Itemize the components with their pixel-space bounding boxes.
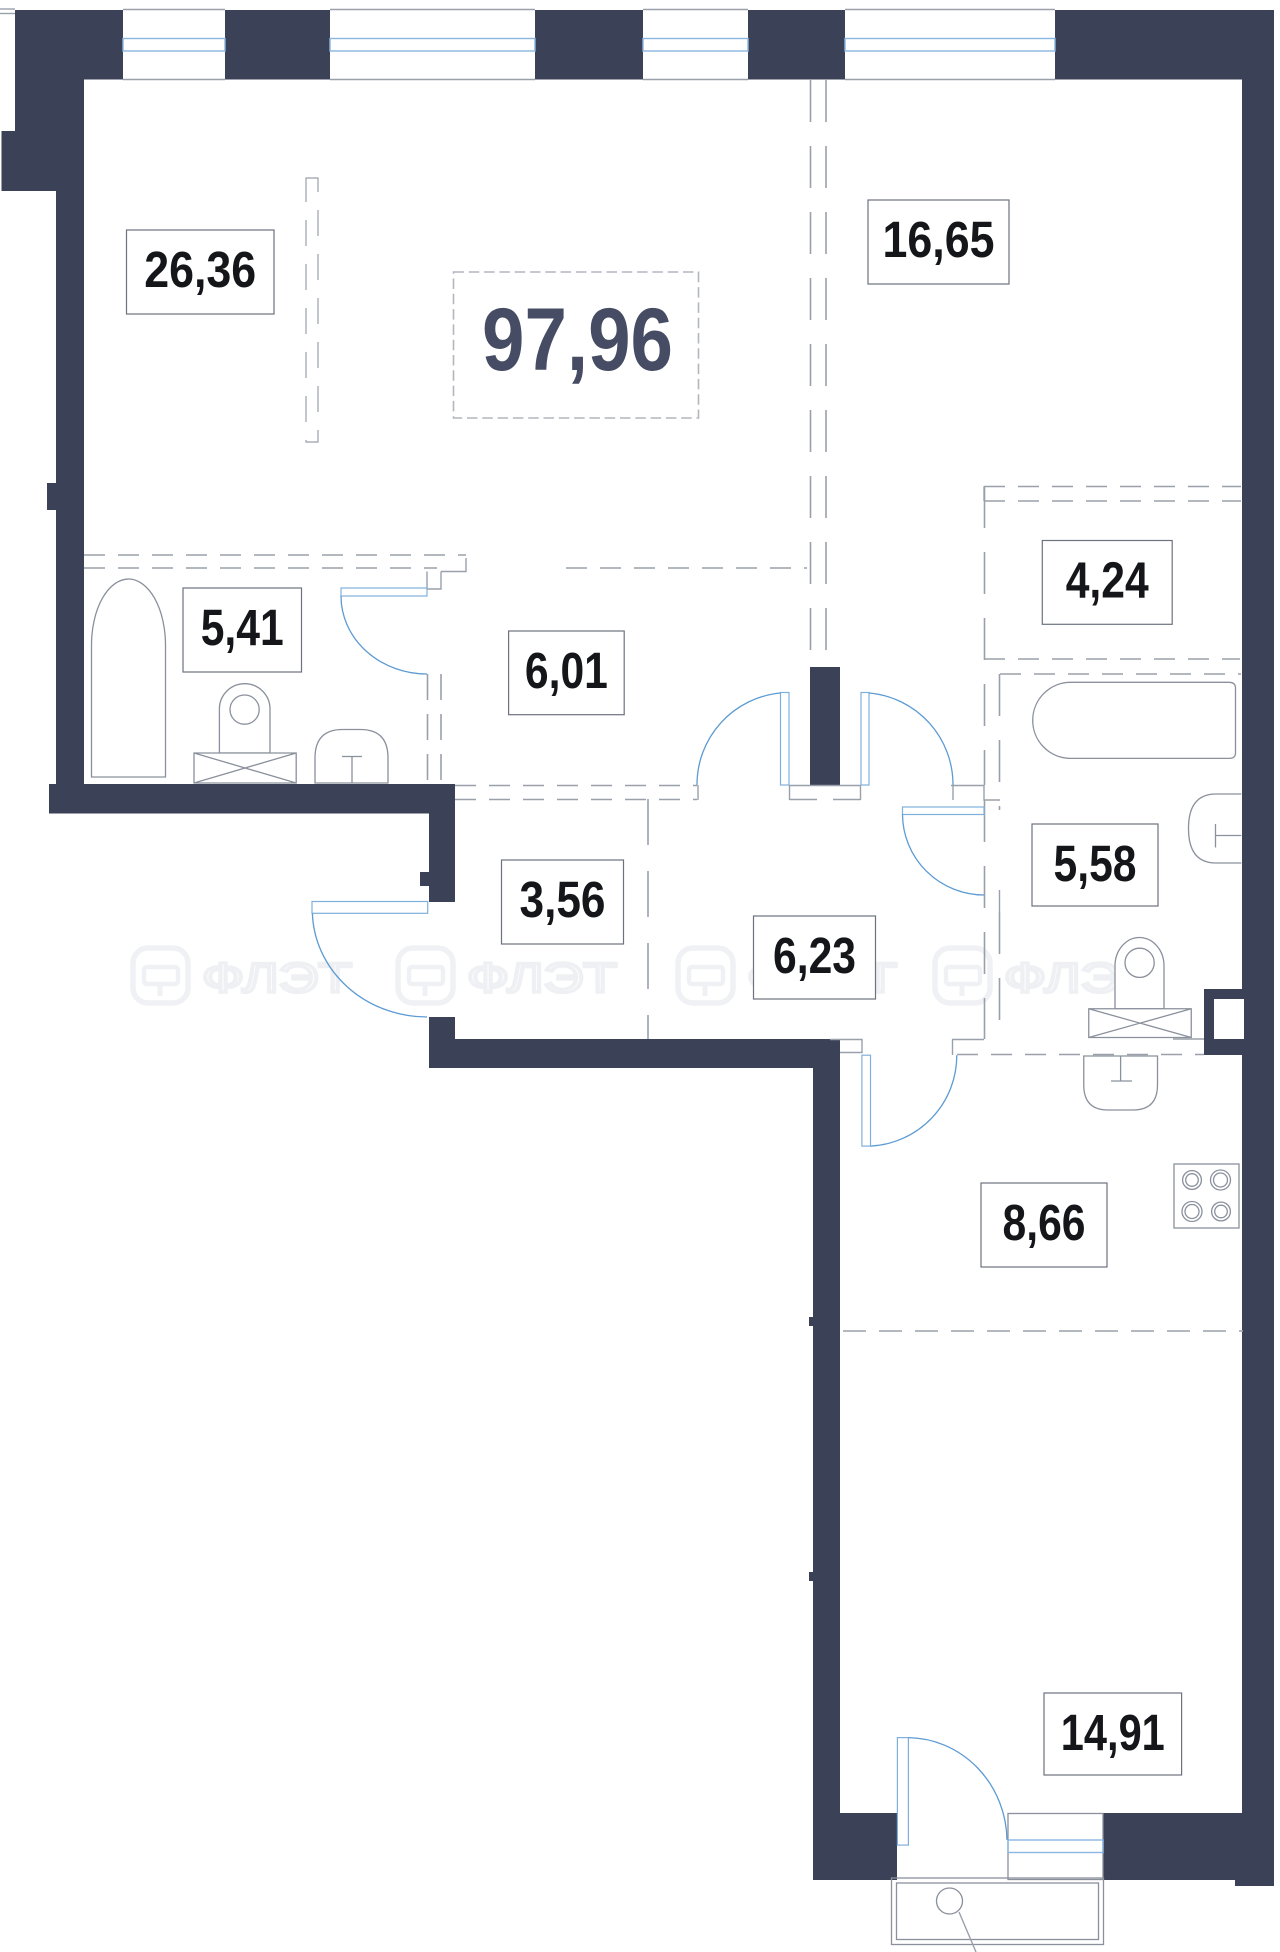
svg-text:ФЛЭТ: ФЛЭТ — [467, 954, 617, 1001]
svg-text:ФЛЭТ: ФЛЭТ — [202, 954, 352, 1001]
svg-text:8,66: 8,66 — [1003, 1194, 1086, 1251]
svg-text:5,58: 5,58 — [1054, 835, 1137, 892]
svg-text:5,41: 5,41 — [201, 599, 284, 656]
svg-text:26,36: 26,36 — [144, 241, 256, 298]
svg-text:4,24: 4,24 — [1066, 552, 1150, 609]
svg-text:3,56: 3,56 — [520, 871, 606, 928]
svg-text:97,96: 97,96 — [482, 289, 673, 389]
svg-text:6,23: 6,23 — [773, 927, 856, 984]
svg-text:6,01: 6,01 — [525, 642, 608, 699]
svg-text:16,65: 16,65 — [883, 211, 995, 268]
svg-text:14,91: 14,91 — [1061, 1704, 1165, 1761]
